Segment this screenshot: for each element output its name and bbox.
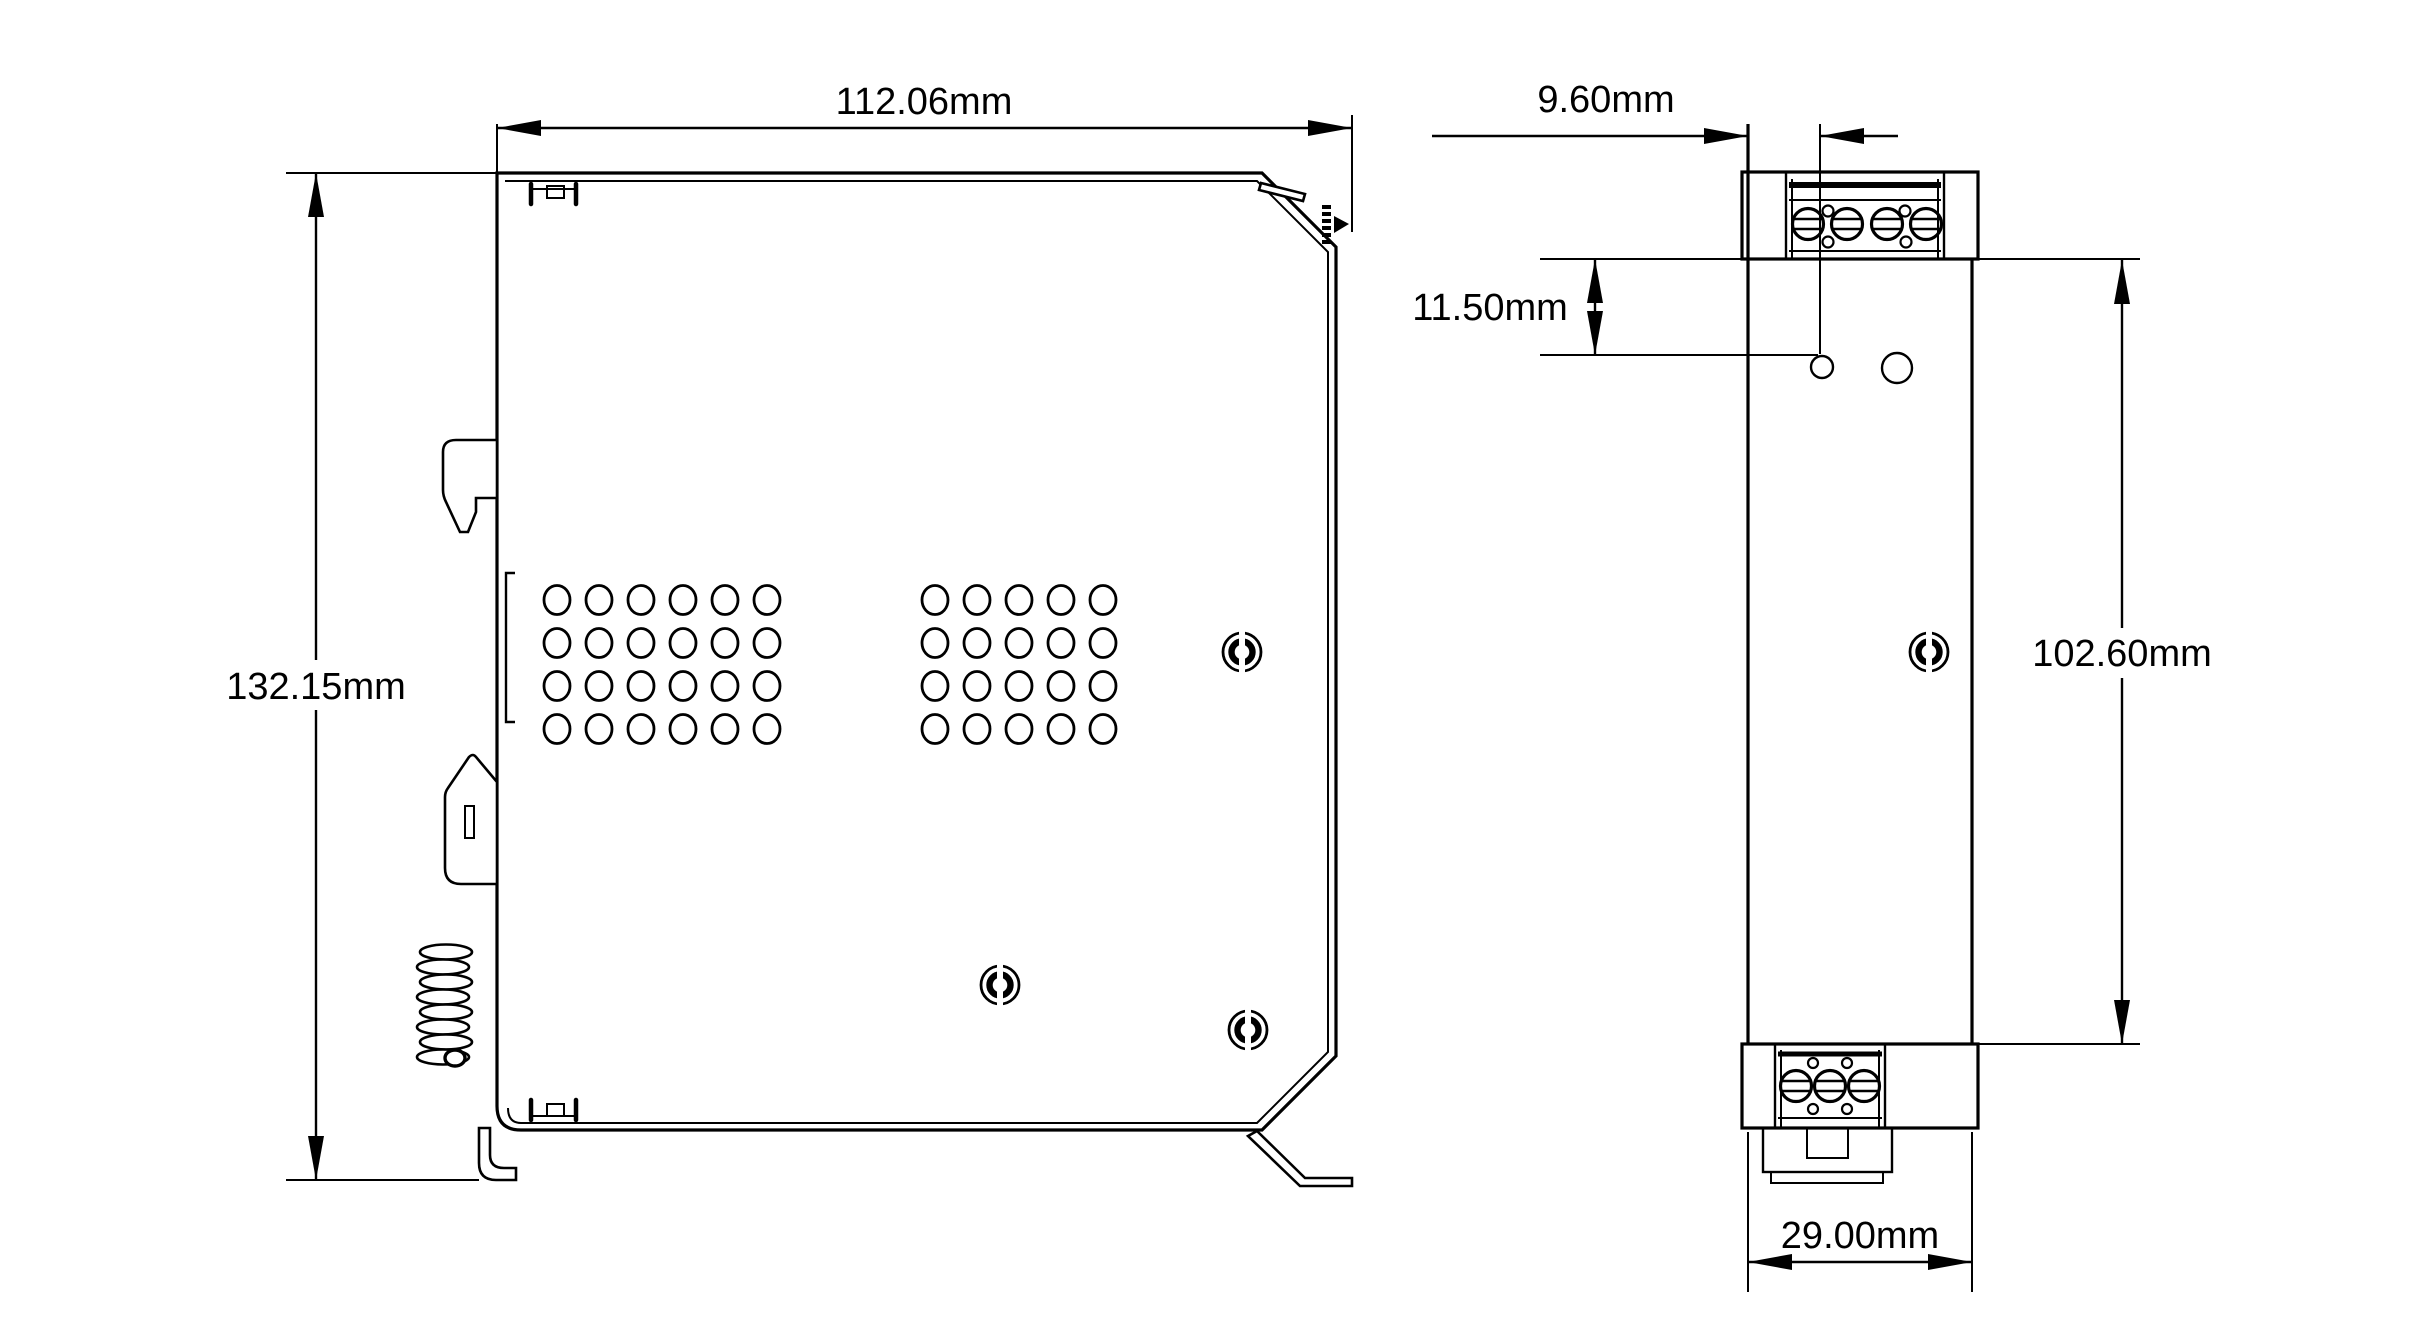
dimensions: 112.06mm 132.15mm 9.60mm 11.50mm <box>218 79 2220 1292</box>
front-hole-large <box>1882 353 1912 383</box>
dim-front-top-to-hole: 11.50mm <box>1412 259 1818 355</box>
vent-hole <box>964 715 990 744</box>
vent-hole <box>628 672 654 701</box>
vent-hole <box>544 672 570 701</box>
terminal-screw <box>1781 1071 1812 1102</box>
pilot-hole <box>1808 1104 1818 1114</box>
terminal-screws-top <box>1793 206 1942 248</box>
vent-hole <box>544 629 570 658</box>
front-screw-head <box>1910 631 1948 674</box>
dim-front-width: 29.00mm <box>1748 1132 1972 1292</box>
pilot-hole <box>1808 1058 1818 1068</box>
vent-hole <box>586 586 612 615</box>
vent-hole <box>1006 629 1032 658</box>
side-body-inner-outline <box>505 181 1328 1123</box>
screw-slot <box>1245 1009 1251 1052</box>
vent-hole <box>922 672 948 701</box>
terminal-screw <box>1815 1071 1846 1102</box>
vent-hole <box>712 629 738 658</box>
pilot-hole <box>1842 1104 1852 1114</box>
vent-hole <box>1048 629 1074 658</box>
terminal-screw <box>1849 1071 1880 1102</box>
dim-side-width-label: 112.06mm <box>836 81 1013 123</box>
pilot-hole <box>1823 237 1834 248</box>
vent-hole <box>712 586 738 615</box>
vent-hole <box>670 715 696 744</box>
vent-hole <box>1048 715 1074 744</box>
front-din-clip <box>1763 1128 1892 1183</box>
vent-hole <box>1006 715 1032 744</box>
vent-hole <box>964 586 990 615</box>
pilot-hole <box>1900 206 1911 217</box>
vent-hole <box>1090 586 1116 615</box>
vent-hole <box>586 672 612 701</box>
dim-side-height-label: 132.15mm <box>226 666 406 708</box>
screw-slot <box>1926 631 1932 674</box>
vent-hole <box>586 715 612 744</box>
spring-coil <box>420 1005 472 1020</box>
spring-coil <box>420 975 472 990</box>
spring-coil <box>417 990 469 1005</box>
dim-front-body-height-label: 102.60mm <box>2032 633 2212 675</box>
vent-hole <box>544 715 570 744</box>
vent-grid-left <box>544 586 780 744</box>
vent-hole <box>544 586 570 615</box>
screw-slot <box>997 964 1003 1007</box>
side-bottom-left-foot <box>479 1128 516 1180</box>
spring-coil <box>417 1020 469 1035</box>
terminal-screw <box>1832 209 1863 240</box>
din-clip-lower <box>445 755 497 884</box>
terminal-screw <box>1793 209 1824 240</box>
side-edge-groove <box>506 573 515 722</box>
vent-hole <box>922 715 948 744</box>
vent-hole <box>1048 586 1074 615</box>
vent-hole <box>754 586 780 615</box>
vent-grid-right <box>922 586 1116 744</box>
vent-hole <box>964 672 990 701</box>
terminal-screws-bottom <box>1781 1058 1880 1114</box>
vent-hole <box>922 586 948 615</box>
front-hole-small <box>1811 356 1833 378</box>
terminal-screw <box>1911 209 1942 240</box>
vent-hole <box>670 629 696 658</box>
vent-hole <box>1006 672 1032 701</box>
vent-hole <box>1006 586 1032 615</box>
dim-front-body-height: 102.60mm <box>2024 260 2220 1044</box>
side-bottom-right-foot <box>1248 1131 1352 1186</box>
clip-arrow-detail <box>1334 216 1349 233</box>
vent-hole <box>1090 715 1116 744</box>
pilot-hole <box>1823 206 1834 217</box>
side-screw-heads <box>981 631 1267 1052</box>
dim-front-edge-to-hole-label: 9.60mm <box>1537 79 1674 121</box>
side-body-outline <box>497 173 1336 1130</box>
vent-hole <box>754 715 780 744</box>
side-top-latch <box>529 184 578 204</box>
technical-drawing-canvas: 112.06mm 132.15mm 9.60mm 11.50mm <box>0 0 2422 1324</box>
dim-front-top-to-hole-label: 11.50mm <box>1412 287 1568 329</box>
coil-spring <box>417 945 472 1067</box>
din-hook-upper <box>443 440 497 532</box>
pilot-hole <box>1901 237 1912 248</box>
spring-end <box>445 1050 465 1066</box>
vent-hole <box>964 629 990 658</box>
pilot-hole <box>1842 1058 1852 1068</box>
side-view <box>417 173 1352 1186</box>
vent-hole <box>1048 672 1074 701</box>
vent-hole <box>712 715 738 744</box>
dim-front-width-label: 29.00mm <box>1781 1215 1939 1257</box>
vent-hole <box>628 715 654 744</box>
vent-hole <box>922 629 948 658</box>
vent-hole <box>628 629 654 658</box>
vent-hole <box>670 672 696 701</box>
vent-hole <box>1090 629 1116 658</box>
spring-coil <box>417 960 469 975</box>
dim-side-width: 112.06mm <box>497 81 1352 232</box>
front-bottom-terminal-block <box>1742 1044 1978 1128</box>
vent-hole <box>754 672 780 701</box>
screw-slot <box>1239 631 1245 674</box>
drawing-svg: 112.06mm 132.15mm 9.60mm 11.50mm <box>0 0 2422 1324</box>
vent-hole <box>1090 672 1116 701</box>
vent-hole <box>586 629 612 658</box>
spring-coil <box>420 1035 472 1050</box>
vent-hole <box>712 672 738 701</box>
vent-hole <box>670 586 696 615</box>
spring-coil <box>420 945 472 960</box>
side-bottom-latch <box>529 1100 578 1120</box>
vent-hole <box>628 586 654 615</box>
front-top-terminal-block <box>1742 172 1978 259</box>
vent-hole <box>754 629 780 658</box>
terminal-screw <box>1872 209 1903 240</box>
